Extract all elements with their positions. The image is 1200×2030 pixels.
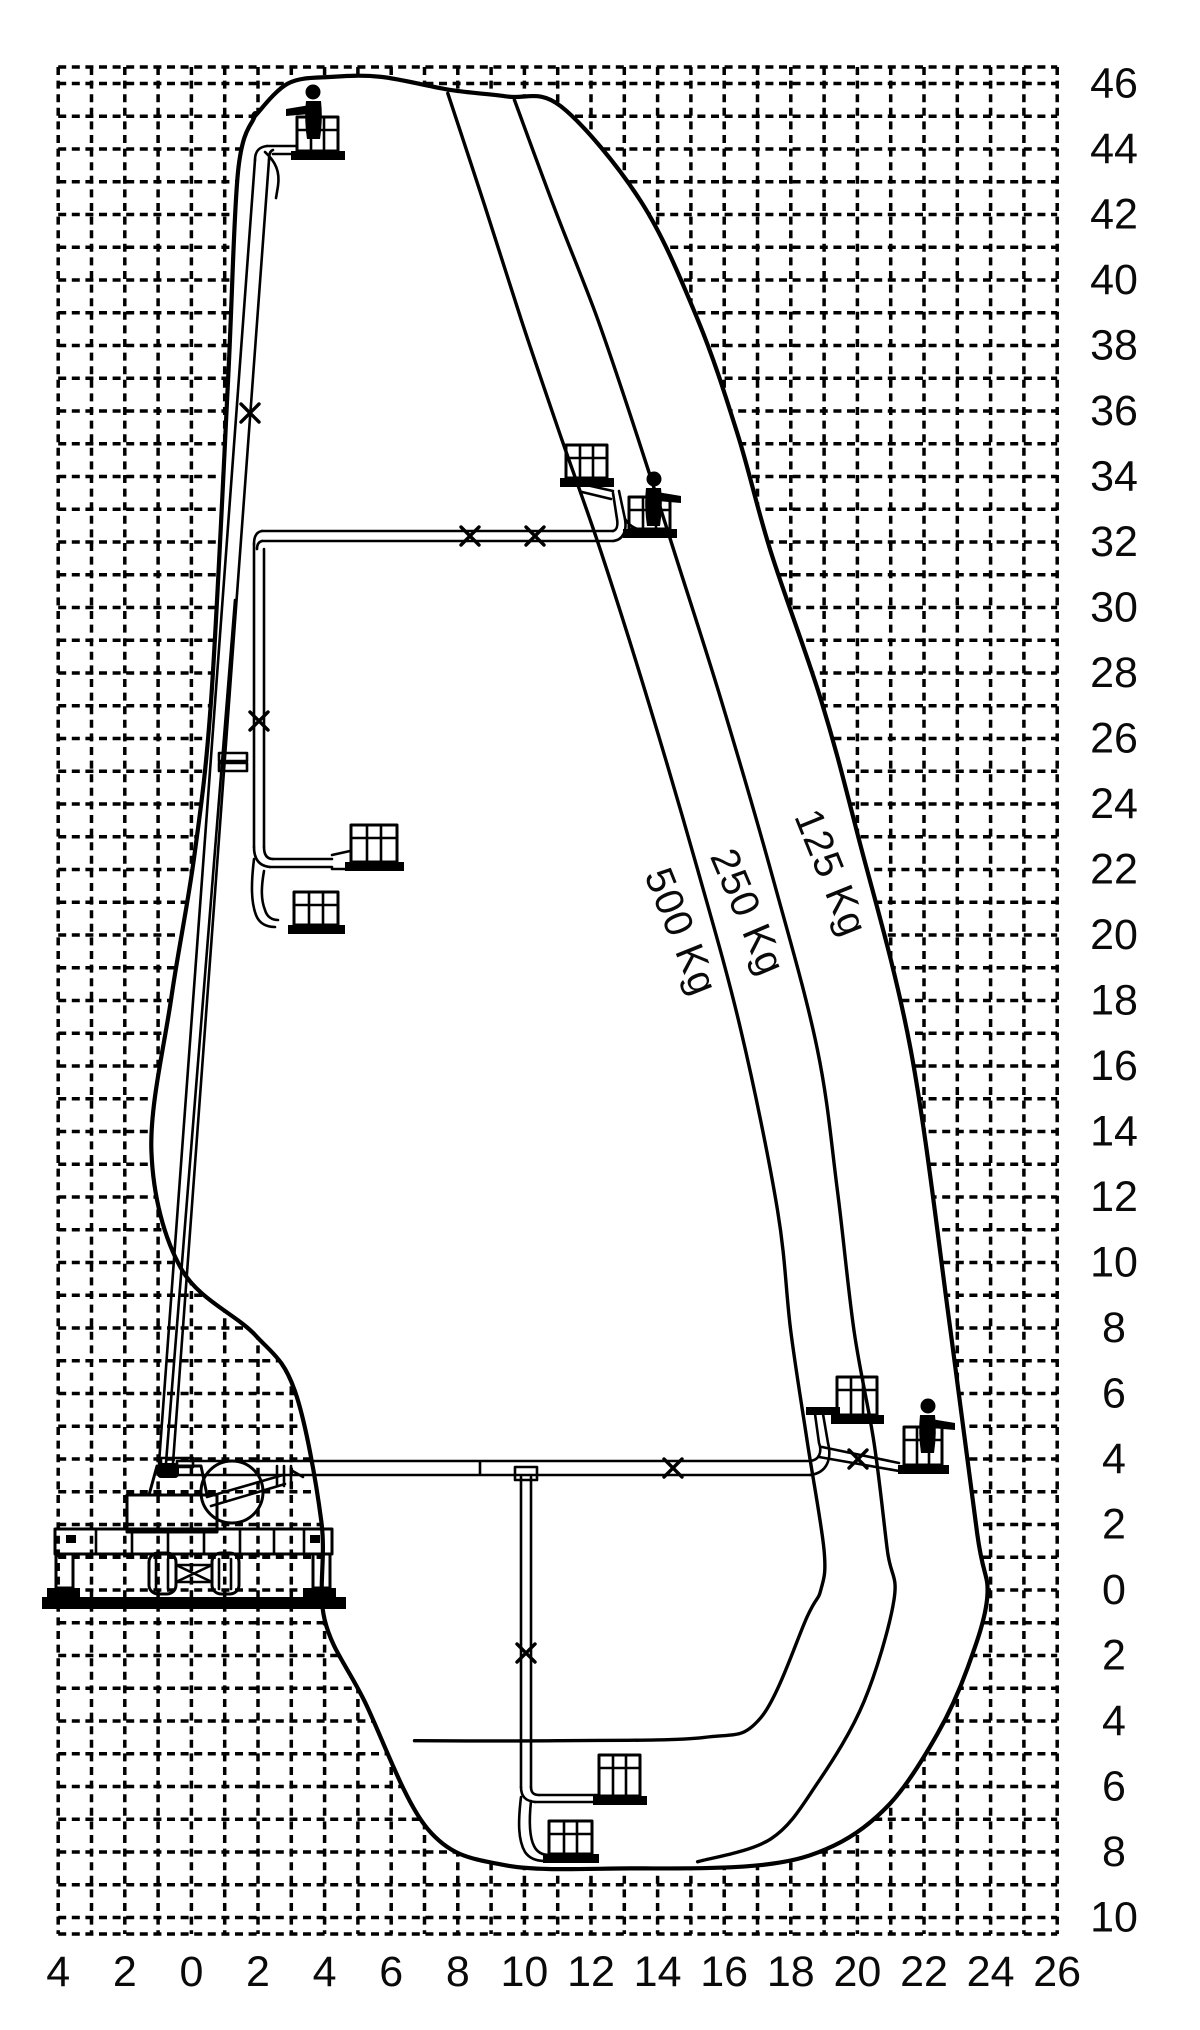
outrigger-jack-left <box>47 1554 80 1598</box>
y-axis-tick-label: 12 <box>1090 1173 1138 1221</box>
x-axis-tick-label: 6 <box>379 1948 403 1996</box>
y-axis-tick-label: 10 <box>1090 1894 1138 1942</box>
working-range-diagram: 500 Kg250 Kg125 Kg <box>0 0 1200 2025</box>
y-axis-tick-label: 28 <box>1090 649 1138 697</box>
x-axis-tick-label: 22 <box>900 1948 948 1996</box>
y-axis-tick-label: 40 <box>1090 256 1138 304</box>
y-axis-tick-label: 16 <box>1090 1042 1138 1090</box>
y-axis-tick-label: 14 <box>1090 1108 1138 1156</box>
x-axis-labels: 4202468101214161820222426 <box>46 1948 1081 1996</box>
outrigger-jack-right <box>303 1554 336 1598</box>
x-axis-tick-label: 10 <box>500 1948 548 1996</box>
x-axis-tick-label: 24 <box>967 1948 1015 1996</box>
y-axis-tick-label: 26 <box>1090 715 1138 763</box>
y-axis-labels: 4644424038363432302826242220181614121086… <box>1090 60 1138 1942</box>
basket-floor <box>831 1415 884 1424</box>
x-axis-tick-label: 2 <box>113 1948 137 1996</box>
x-axis-tick-label: 20 <box>833 1948 881 1996</box>
y-axis-tick-label: 42 <box>1090 191 1138 239</box>
x-axis-tick-label: 0 <box>179 1948 203 1996</box>
y-axis-tick-label: 4 <box>1102 1435 1126 1483</box>
x-axis-tick-label: 14 <box>634 1948 682 1996</box>
wheel <box>149 1553 176 1594</box>
wheel <box>212 1553 239 1594</box>
basket-floor <box>593 1796 647 1805</box>
y-axis-tick-label: 36 <box>1090 387 1138 435</box>
y-axis-tick-label: 38 <box>1090 322 1138 370</box>
range-diagram-svg: 500 Kg250 Kg125 Kg <box>0 0 1200 2025</box>
x-axis-tick-label: 16 <box>700 1948 748 1996</box>
ground-line <box>42 1597 346 1609</box>
y-axis-tick-label: 34 <box>1090 453 1138 501</box>
x-axis-tick-label: 18 <box>767 1948 815 1996</box>
x-axis-tick-label: 4 <box>313 1948 337 1996</box>
x-axis-tick-label: 4 <box>46 1948 70 1996</box>
x-axis-tick-label: 8 <box>446 1948 470 1996</box>
axle <box>176 1565 212 1582</box>
basket-floor <box>898 1465 949 1474</box>
x-axis-tick-label: 12 <box>567 1948 615 1996</box>
basket-floor <box>623 529 677 538</box>
turret <box>127 1458 303 1532</box>
basket-floor <box>288 925 345 934</box>
y-axis-tick-label: 30 <box>1090 584 1138 632</box>
y-axis-tick-label: 6 <box>1102 1763 1126 1811</box>
x-axis-tick-label: 26 <box>1033 1948 1081 1996</box>
y-axis-tick-label: 10 <box>1090 1239 1138 1287</box>
y-axis-tick-label: 6 <box>1102 1370 1126 1418</box>
y-axis-tick-label: 46 <box>1090 60 1138 108</box>
y-axis-tick-label: 8 <box>1102 1304 1126 1352</box>
basket-floor <box>291 151 345 160</box>
y-axis-tick-label: 0 <box>1102 1566 1126 1614</box>
y-axis-tick-label: 2 <box>1102 1632 1126 1680</box>
basket-floor <box>543 1854 599 1863</box>
basket-floor <box>560 478 614 487</box>
basket-floor <box>345 862 404 871</box>
y-axis-tick-label: 4 <box>1102 1697 1126 1745</box>
y-axis-tick-label: 24 <box>1090 780 1138 828</box>
y-axis-tick-label: 22 <box>1090 846 1138 894</box>
y-axis-tick-label: 44 <box>1090 125 1138 173</box>
y-axis-tick-label: 2 <box>1102 1501 1126 1549</box>
y-axis-tick-label: 18 <box>1090 977 1138 1025</box>
y-axis-tick-label: 32 <box>1090 518 1138 566</box>
y-axis-tick-label: 8 <box>1102 1828 1126 1876</box>
y-axis-tick-label: 20 <box>1090 911 1138 959</box>
x-axis-tick-label: 2 <box>246 1948 270 1996</box>
